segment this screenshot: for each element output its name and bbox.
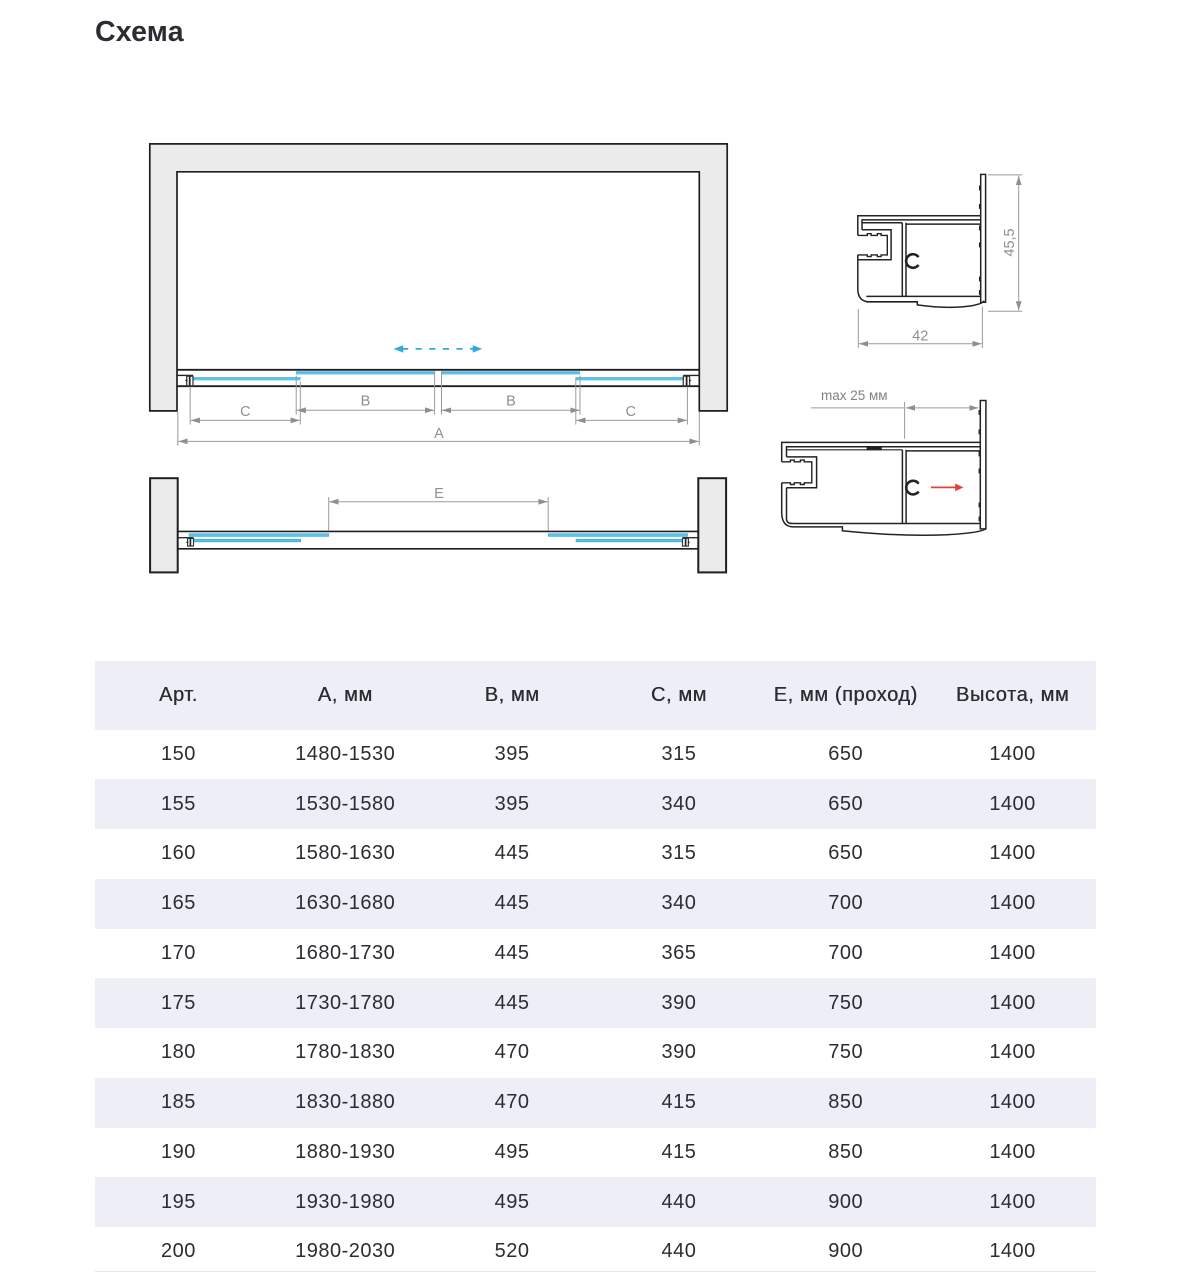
svg-text:C: C bbox=[625, 404, 635, 420]
svg-text:A: A bbox=[434, 426, 444, 442]
svg-text:max 25 мм: max 25 мм bbox=[821, 388, 888, 403]
svg-text:E: E bbox=[434, 486, 444, 502]
svg-text:B: B bbox=[361, 394, 371, 410]
svg-text:C: C bbox=[240, 404, 250, 420]
svg-text:42: 42 bbox=[912, 328, 928, 344]
svg-text:45,5: 45,5 bbox=[1002, 228, 1018, 256]
svg-text:B: B bbox=[506, 394, 516, 410]
